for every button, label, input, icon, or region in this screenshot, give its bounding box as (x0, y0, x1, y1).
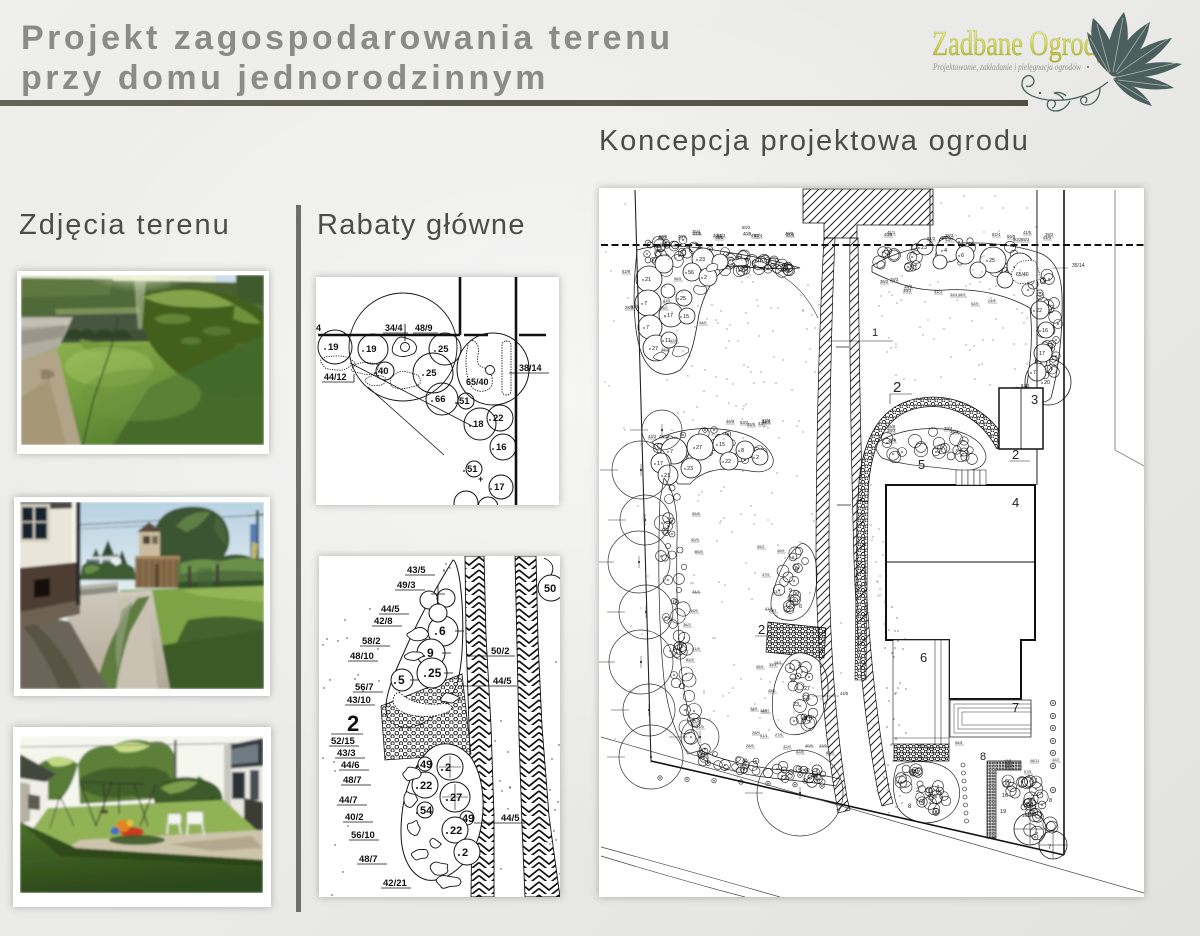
svg-text:56/10: 56/10 (351, 830, 375, 841)
svg-text:160/4: 160/4 (1022, 813, 1034, 818)
svg-text:42/2: 42/2 (648, 434, 657, 439)
svg-text:45/5: 45/5 (678, 234, 687, 239)
svg-text:23: 23 (793, 702, 799, 708)
svg-text:40/9: 40/9 (756, 665, 763, 669)
svg-text:56/5: 56/5 (1007, 234, 1016, 239)
svg-text:27: 27 (652, 346, 658, 352)
svg-text:23: 23 (699, 257, 705, 263)
svg-text:53/2: 53/2 (740, 420, 749, 425)
svg-text:82/4: 82/4 (992, 232, 1001, 237)
svg-text:34/9: 34/9 (750, 707, 757, 711)
svg-text:50/2: 50/2 (742, 225, 751, 230)
svg-text:44/5: 44/5 (840, 691, 849, 696)
svg-text:22: 22 (420, 780, 432, 792)
svg-text:20: 20 (1044, 380, 1050, 386)
svg-text:4: 4 (944, 248, 947, 254)
svg-text:2: 2 (756, 455, 759, 461)
svg-text:41/1: 41/1 (934, 289, 943, 294)
svg-text:1: 1 (1035, 778, 1038, 784)
svg-text:34/9: 34/9 (699, 321, 706, 325)
svg-text:43/3: 43/3 (337, 748, 356, 759)
svg-text:2: 2 (347, 711, 359, 736)
svg-text:7: 7 (1033, 370, 1036, 376)
svg-text:57/5: 57/5 (1024, 770, 1031, 774)
svg-text:43/5: 43/5 (819, 743, 828, 748)
svg-text:48/7: 48/7 (343, 775, 362, 786)
svg-text:52/15: 52/15 (331, 736, 355, 747)
svg-text:44/5: 44/5 (501, 813, 520, 824)
svg-text:56/5: 56/5 (695, 549, 704, 554)
svg-text:41/1: 41/1 (760, 733, 769, 738)
svg-text:82/4: 82/4 (754, 233, 763, 238)
svg-text:50/2: 50/2 (491, 646, 510, 657)
svg-text:25: 25 (428, 666, 442, 680)
svg-text:28/3: 28/3 (890, 277, 899, 282)
svg-text:6: 6 (920, 650, 927, 665)
svg-text:52/9: 52/9 (622, 269, 631, 274)
svg-text:2: 2 (704, 275, 707, 281)
svg-text:43/5: 43/5 (692, 719, 701, 724)
svg-text:40/9: 40/9 (884, 232, 893, 237)
svg-text:+: + (478, 474, 483, 484)
svg-text:42/21: 42/21 (383, 878, 407, 889)
svg-text:37/9: 37/9 (762, 573, 769, 577)
svg-text:17: 17 (657, 461, 663, 467)
svg-text:46/9: 46/9 (958, 293, 965, 297)
svg-text:44/12: 44/12 (324, 372, 347, 382)
svg-text:39/3: 39/3 (944, 426, 953, 431)
svg-text:41/9: 41/9 (765, 607, 772, 611)
svg-text:40/9: 40/9 (691, 537, 700, 542)
svg-text:44/7: 44/7 (339, 795, 358, 806)
svg-text:49: 49 (420, 759, 432, 771)
svg-text:66: 66 (1005, 779, 1011, 785)
svg-text:16: 16 (1042, 328, 1048, 334)
svg-text:42/9: 42/9 (760, 709, 767, 713)
svg-text:28/3: 28/3 (945, 233, 954, 238)
svg-text:49/2: 49/2 (661, 348, 668, 352)
svg-text:50/2: 50/2 (660, 306, 667, 310)
svg-text:40/2: 40/2 (345, 812, 364, 823)
svg-text:5: 5 (795, 568, 798, 574)
svg-text:23: 23 (687, 466, 693, 472)
svg-text:34/4: 34/4 (385, 323, 403, 333)
svg-text:15: 15 (719, 442, 725, 448)
svg-text:7: 7 (644, 301, 647, 307)
svg-text:42/9: 42/9 (783, 744, 792, 749)
svg-text:9: 9 (789, 588, 792, 594)
svg-text:48/10: 48/10 (350, 651, 374, 662)
svg-text:28/3: 28/3 (774, 661, 781, 665)
svg-text:Zadbane Ogrody: Zadbane Ogrody (932, 24, 1110, 63)
svg-text:22: 22 (725, 459, 731, 465)
svg-text:18: 18 (473, 419, 484, 430)
svg-text:8: 8 (1049, 798, 1052, 804)
svg-text:41/5: 41/5 (1023, 230, 1032, 235)
svg-text:4: 4 (1012, 495, 1019, 510)
svg-text:6: 6 (439, 624, 446, 638)
svg-text:44/5: 44/5 (493, 676, 512, 687)
svg-text:36/4: 36/4 (1005, 765, 1012, 769)
svg-text:56: 56 (688, 270, 694, 276)
svg-text:51: 51 (467, 464, 478, 475)
svg-text:8: 8 (741, 448, 744, 454)
svg-text:22: 22 (493, 413, 504, 424)
svg-text:25: 25 (680, 296, 686, 302)
svg-text:7: 7 (646, 325, 649, 331)
svg-text:65/2: 65/2 (1021, 237, 1030, 242)
svg-text:56/5: 56/5 (659, 234, 668, 239)
svg-text:6: 6 (799, 604, 802, 610)
svg-text:17: 17 (494, 482, 505, 493)
svg-text:45/5: 45/5 (747, 422, 756, 427)
svg-text:50: 50 (544, 583, 556, 595)
svg-text:36/2: 36/2 (683, 622, 692, 627)
svg-text:43/10: 43/10 (347, 695, 371, 706)
svg-text:34/4: 34/4 (950, 293, 957, 297)
svg-text:1: 1 (872, 327, 878, 339)
svg-text:43/7: 43/7 (773, 590, 780, 594)
svg-text:40/9: 40/9 (805, 743, 814, 748)
svg-text:6: 6 (961, 253, 964, 259)
svg-text:44/5: 44/5 (762, 419, 771, 424)
svg-text:4: 4 (316, 323, 321, 333)
svg-text:44/6: 44/6 (341, 760, 360, 771)
svg-text:15: 15 (683, 314, 689, 320)
svg-text:36/2: 36/2 (904, 284, 913, 289)
svg-text:27: 27 (450, 792, 462, 804)
svg-text:25: 25 (989, 258, 995, 264)
svg-text:8: 8 (980, 751, 986, 763)
svg-text:41/5: 41/5 (696, 724, 705, 729)
svg-text:51: 51 (459, 396, 470, 407)
svg-text:50/2: 50/2 (757, 545, 764, 549)
svg-text:55/8: 55/8 (692, 511, 701, 516)
svg-text:48/7: 48/7 (359, 854, 378, 865)
svg-text:27: 27 (804, 686, 810, 692)
svg-text:25: 25 (426, 368, 437, 379)
svg-text:28/9: 28/9 (746, 743, 755, 748)
svg-text:41/1: 41/1 (1043, 235, 1052, 240)
svg-text:36/4: 36/4 (692, 229, 701, 234)
svg-text:55/8: 55/8 (955, 741, 962, 745)
svg-text:7: 7 (1012, 700, 1019, 715)
svg-text:44/5: 44/5 (381, 604, 400, 615)
svg-text:19: 19 (1000, 809, 1006, 815)
svg-text:48/11: 48/11 (659, 434, 670, 439)
svg-text:22: 22 (450, 825, 462, 837)
svg-text:27/5: 27/5 (775, 732, 784, 737)
svg-text:27: 27 (696, 445, 702, 451)
svg-text:43/5: 43/5 (407, 565, 426, 576)
svg-text:2: 2 (758, 622, 765, 637)
svg-text:41/9: 41/9 (692, 646, 701, 651)
svg-text:35/14: 35/14 (1072, 263, 1085, 269)
svg-text:28/3: 28/3 (625, 305, 634, 310)
svg-text:40/9: 40/9 (777, 549, 784, 553)
svg-text:2: 2 (798, 662, 801, 668)
svg-text:22: 22 (790, 678, 796, 684)
svg-text:48/9: 48/9 (415, 323, 433, 333)
svg-text:37/9: 37/9 (786, 232, 795, 237)
svg-text:2: 2 (893, 379, 901, 396)
svg-text:48/11: 48/11 (1030, 759, 1039, 763)
svg-text:42/8: 42/8 (670, 339, 677, 343)
svg-text:40: 40 (378, 366, 389, 377)
svg-text:34/4: 34/4 (692, 589, 701, 594)
svg-text:43/7: 43/7 (918, 755, 925, 759)
svg-text:65/40: 65/40 (466, 377, 489, 387)
svg-text:54: 54 (420, 805, 433, 817)
svg-text:2: 2 (1031, 795, 1034, 801)
svg-text:40/9: 40/9 (743, 231, 752, 236)
svg-text:82/4: 82/4 (686, 657, 695, 662)
svg-text:81/2: 81/2 (927, 236, 936, 241)
svg-text:46/9: 46/9 (690, 608, 699, 613)
svg-text:39/4: 39/4 (713, 233, 722, 238)
svg-text:66: 66 (435, 394, 446, 405)
svg-text:42/8: 42/8 (374, 616, 393, 627)
svg-text:36/4: 36/4 (927, 746, 934, 750)
svg-text:42/2: 42/2 (1052, 758, 1059, 762)
svg-text:25: 25 (438, 344, 449, 355)
svg-text:46/9: 46/9 (726, 419, 735, 424)
svg-text:5: 5 (398, 673, 405, 687)
svg-text:16: 16 (496, 442, 507, 453)
svg-text:21: 21 (645, 277, 651, 283)
svg-text:16: 16 (1002, 793, 1008, 799)
svg-text:56/5: 56/5 (674, 277, 681, 281)
svg-text:65/40: 65/40 (1016, 272, 1029, 278)
svg-text:52/9: 52/9 (971, 302, 978, 306)
svg-text:36/2: 36/2 (880, 279, 889, 284)
svg-text:17: 17 (1039, 351, 1045, 357)
svg-text:19: 19 (328, 342, 339, 353)
svg-text:5: 5 (918, 457, 925, 472)
svg-text:45/5: 45/5 (768, 689, 775, 693)
svg-text:7: 7 (670, 449, 673, 455)
svg-text:17: 17 (667, 313, 673, 319)
svg-text:56/7: 56/7 (355, 682, 374, 693)
svg-text:24/9: 24/9 (988, 299, 995, 303)
svg-text:Projektowanie, zakładanie i pi: Projektowanie, zakładanie i pielęgnacja … (932, 62, 1081, 72)
svg-text:19: 19 (366, 344, 377, 355)
svg-text:2: 2 (462, 847, 468, 859)
svg-text:49/3: 49/3 (397, 580, 416, 591)
svg-text:3: 3 (1031, 392, 1038, 407)
svg-text:38/14: 38/14 (519, 363, 542, 373)
